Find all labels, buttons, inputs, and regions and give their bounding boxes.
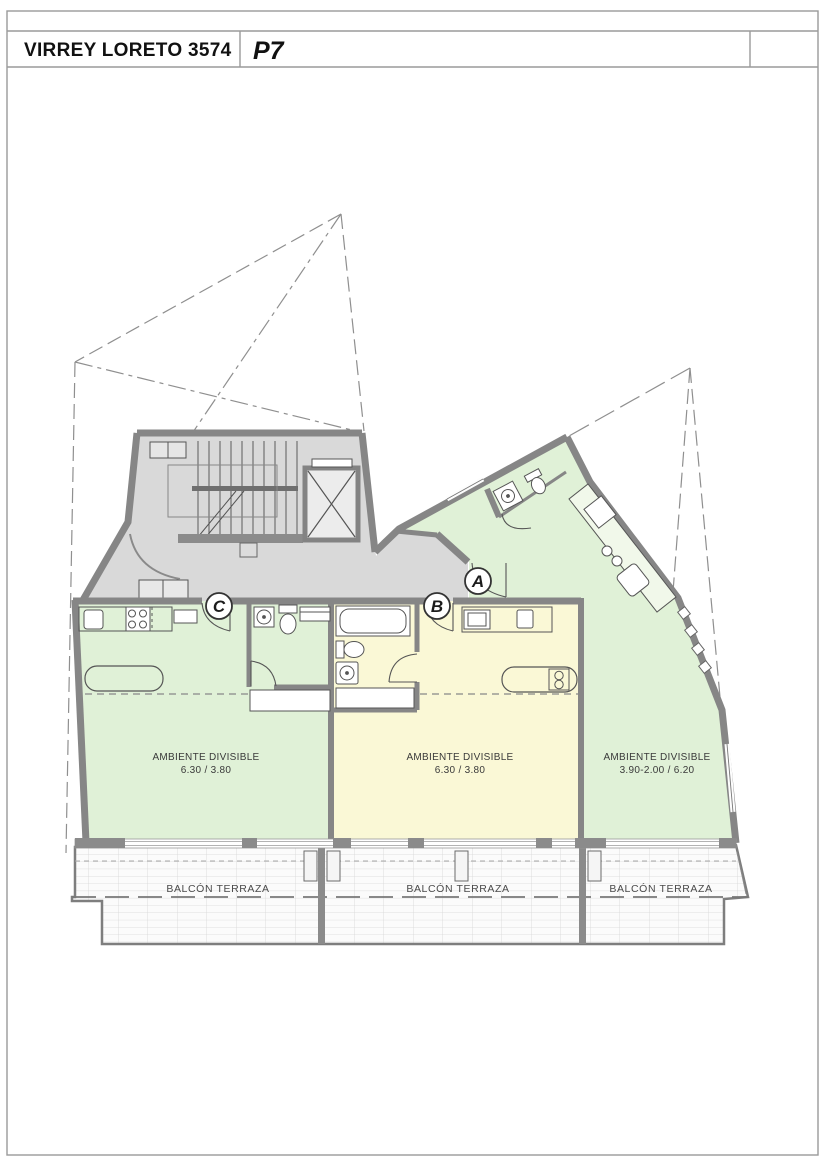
unit-c-floor (73, 601, 331, 843)
balcony-label: BALCÓN TERRAZA (406, 882, 509, 895)
svg-text:C: C (213, 597, 226, 616)
unit-a-room-label: AMBIENTE DIVISIBLE (603, 752, 710, 763)
unit-c-closet (250, 690, 330, 711)
balcony-label: BALCÓN TERRAZA (166, 882, 269, 895)
svg-text:B: B (431, 597, 443, 616)
title-block: VIRREY LORETO 3574 P7 (24, 37, 285, 65)
balcony-label: BALCÓN TERRAZA (609, 882, 712, 895)
elevator-door (312, 459, 352, 467)
hall-niche (240, 543, 257, 557)
unit-c-badge: C (206, 593, 232, 619)
unit-c-room-dims: 6.30 / 3.80 (181, 765, 232, 776)
unit-b-badge: B (424, 593, 450, 619)
elevator-shaft (305, 459, 358, 540)
balcony-terrace: BALCÓN TERRAZA BALCÓN TERRAZA BALCÓN TER… (72, 845, 748, 944)
unit-c-room-label: AMBIENTE DIVISIBLE (152, 752, 259, 763)
unit-a-room-dims: 3.90-2.00 / 6.20 (620, 765, 695, 776)
unit-b-room-label: AMBIENTE DIVISIBLE (406, 752, 513, 763)
stair-landing-wall (178, 534, 303, 543)
stair-mid-rail (192, 486, 298, 491)
svg-text:A: A (471, 572, 484, 591)
unit-b-room-dims: 6.30 / 3.80 (435, 765, 486, 776)
balcony-divider (318, 847, 325, 944)
unit-b-floor (331, 601, 581, 843)
floor-label: P7 (253, 37, 285, 65)
unit-a-badge: A (465, 568, 491, 594)
window-band (75, 838, 736, 848)
balcony-divider (579, 847, 586, 944)
project-address: VIRREY LORETO 3574 (24, 40, 232, 61)
floor-plan-svg: BALCÓN TERRAZA BALCÓN TERRAZA BALCÓN TER… (0, 0, 828, 1170)
drawing-sheet: BALCÓN TERRAZA BALCÓN TERRAZA BALCÓN TER… (0, 0, 828, 1170)
